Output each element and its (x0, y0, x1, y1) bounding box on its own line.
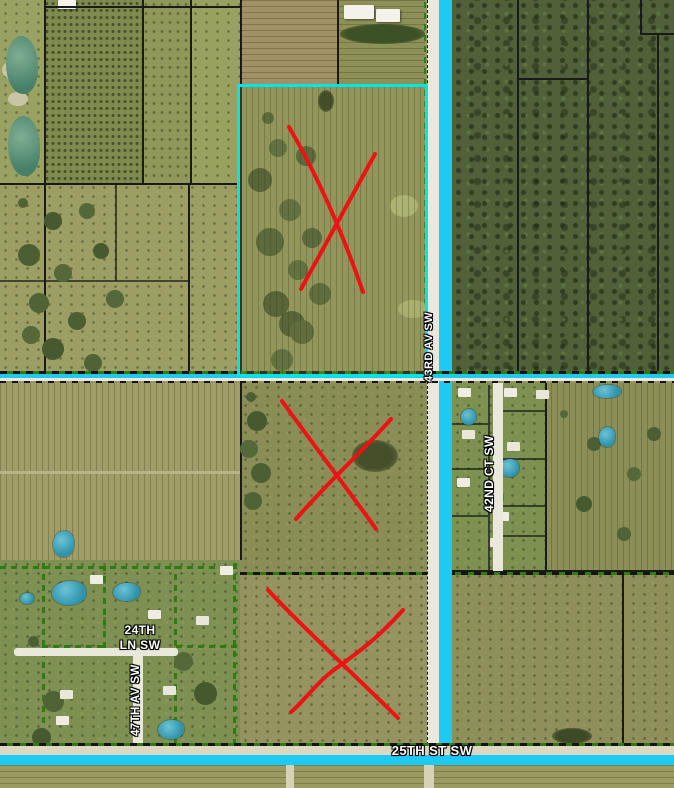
field-rows-top-center (240, 0, 337, 84)
green-boundary (103, 566, 106, 648)
street-label-42nd-ct-sw: 42ND CT SW (483, 421, 496, 527)
green-boundary (176, 645, 240, 648)
field-mid-left (0, 183, 240, 374)
forest-east (452, 0, 674, 374)
parcel-line (188, 183, 190, 374)
parcel-line (503, 410, 545, 412)
green-boundary (0, 566, 240, 569)
selected-parcel-outline (237, 84, 428, 377)
pond (599, 427, 615, 447)
tree-cluster (18, 198, 28, 208)
road-edge-dashed (0, 381, 674, 383)
field-se (452, 572, 674, 745)
parcel-line (115, 183, 117, 281)
road-highlight-25th (0, 755, 674, 765)
road-25th-st-sw (0, 746, 674, 755)
field-sparse (190, 0, 240, 183)
pond (6, 36, 38, 94)
street-label-24th: 24TH (110, 624, 170, 637)
street-label-47th-av-sw: 47TH AV SW (130, 656, 142, 744)
field-bottom-strip (0, 765, 674, 788)
tree-cluster (246, 392, 256, 402)
parcel-line (657, 33, 659, 374)
dark-vegetation (352, 440, 398, 472)
pond (113, 583, 140, 601)
parcel-line (517, 78, 589, 80)
scrub-parcel-south (240, 574, 428, 745)
street-label-ln-sw: LN SW (108, 639, 172, 652)
parcel-line (0, 183, 240, 185)
parcel-line (503, 505, 545, 507)
street-label-43rd-av-sw: 43RD AV SW (424, 306, 436, 388)
parcel-line (44, 0, 46, 374)
parcel-line (337, 0, 339, 84)
pond (53, 531, 74, 557)
field-break-line (0, 471, 240, 474)
pond (593, 385, 621, 398)
bare-patch (8, 92, 28, 106)
green-boundary (233, 560, 236, 745)
farm-building (344, 5, 374, 19)
field-orchard-dense (44, 0, 142, 183)
parcel-line (0, 280, 188, 282)
parcel-line (142, 0, 144, 183)
tree-cluster (28, 636, 39, 647)
parcel-notch (640, 0, 674, 35)
field-gap (286, 765, 294, 788)
scrub-parcel-middle (240, 383, 428, 574)
parcel-line (45, 6, 240, 8)
pond (8, 116, 40, 176)
dark-vegetation (552, 728, 592, 744)
parcel-line (190, 0, 192, 183)
houses (90, 575, 103, 584)
farm-building (376, 9, 400, 22)
parcel-line-dashed (240, 572, 674, 575)
tree-cluster (560, 410, 568, 418)
field-gap (424, 765, 434, 788)
pond (158, 720, 184, 739)
pond (461, 409, 476, 425)
parcel-line (587, 0, 589, 374)
hedge-row (340, 24, 425, 44)
parcel-line (503, 535, 545, 537)
parcel-line (517, 0, 519, 374)
parcel-line (545, 383, 547, 570)
pond (20, 593, 34, 604)
pond (52, 581, 86, 605)
field-orchard-light (142, 0, 190, 183)
street-label-25th-st-sw: 25TH ST SW (391, 744, 473, 758)
map-canvas[interactable]: 43RD AV SW 42ND CT SW 47TH AV SW 24TH LN… (0, 0, 674, 788)
parcel-line (622, 572, 624, 745)
